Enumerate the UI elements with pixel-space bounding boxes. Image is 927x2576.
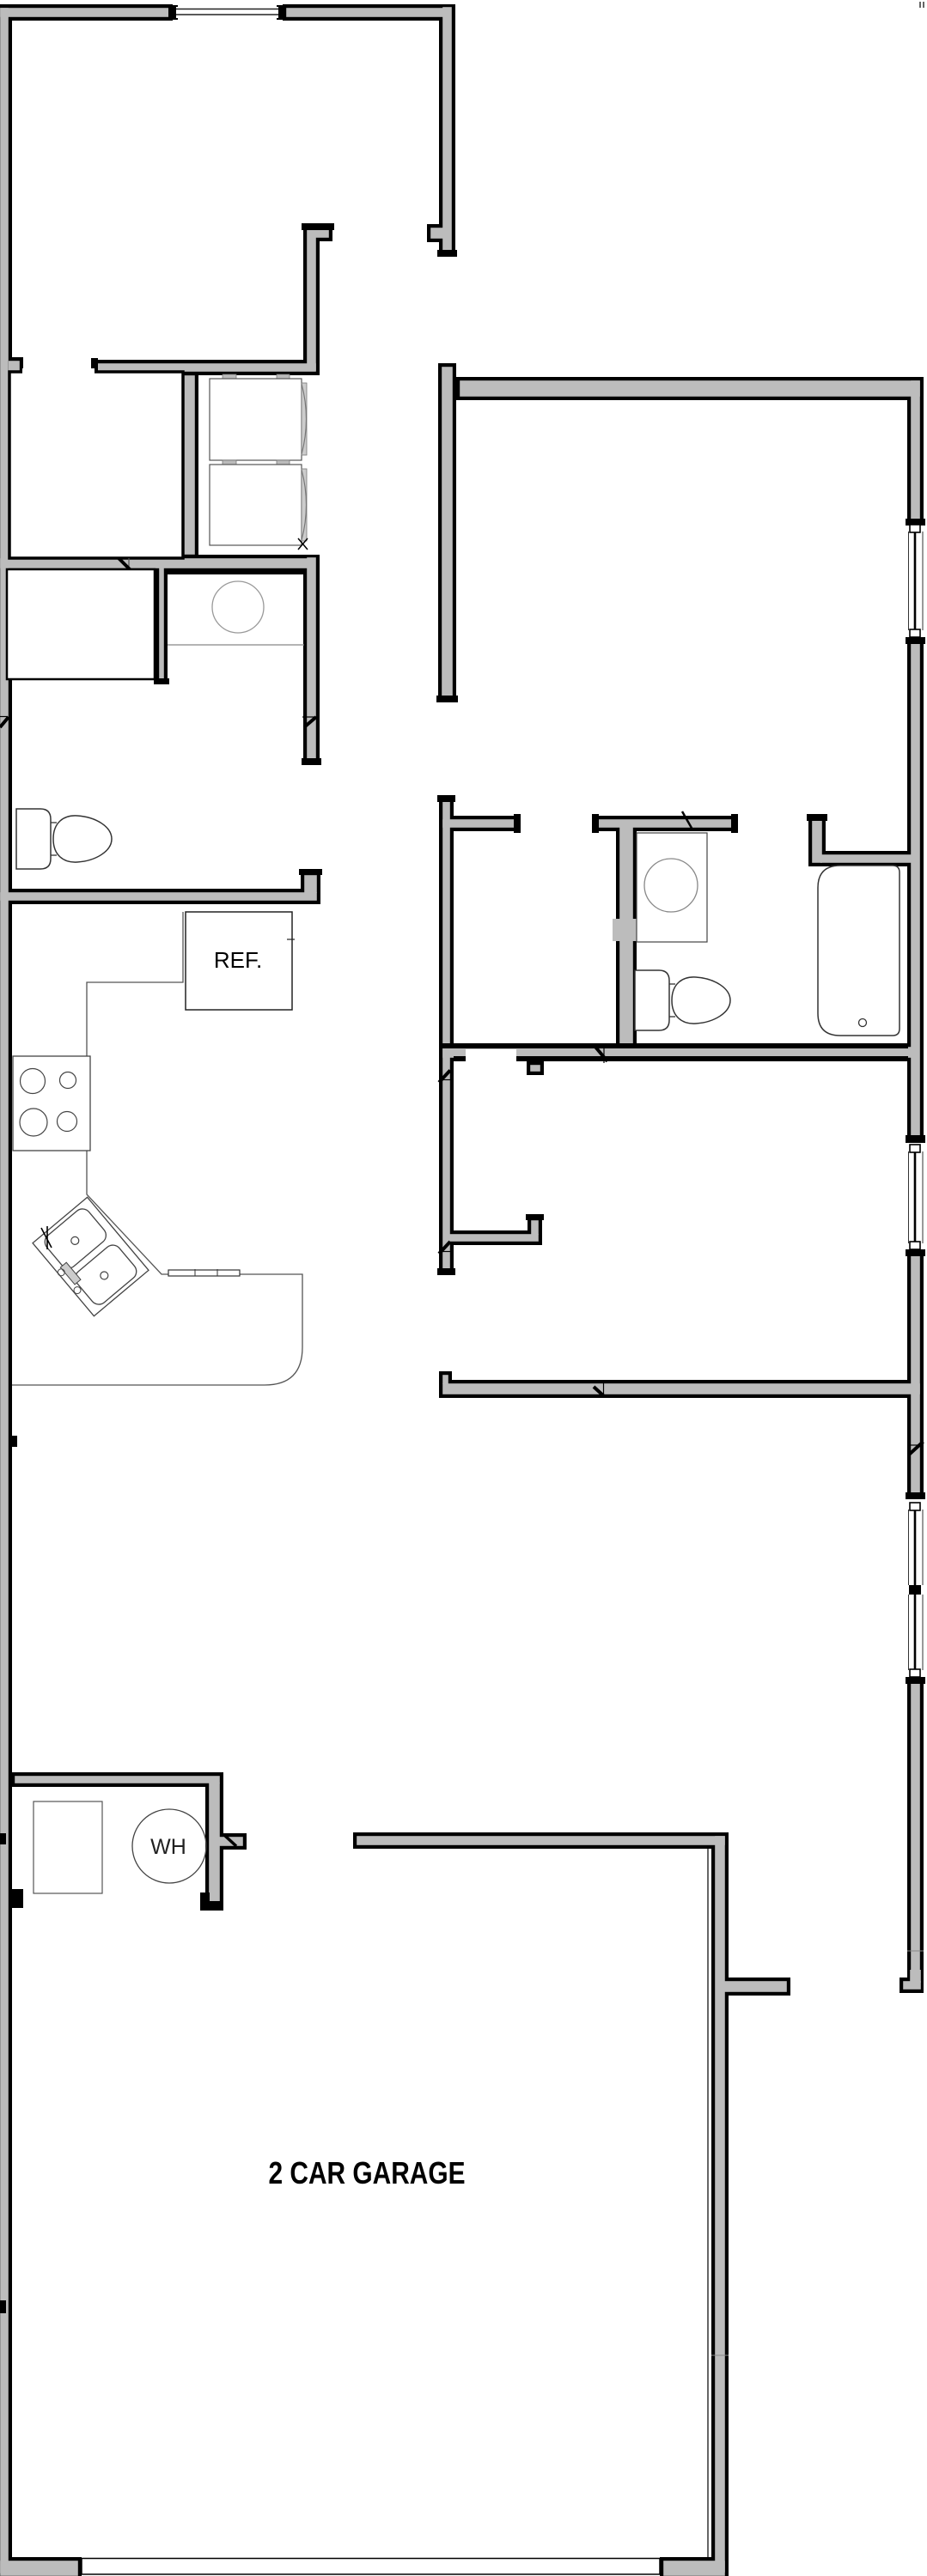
svg-text:REF.: REF. <box>214 947 262 973</box>
svg-text:WH: WH <box>150 1835 186 1859</box>
svg-text:2 CAR GARAGE: 2 CAR GARAGE <box>268 2156 465 2190</box>
